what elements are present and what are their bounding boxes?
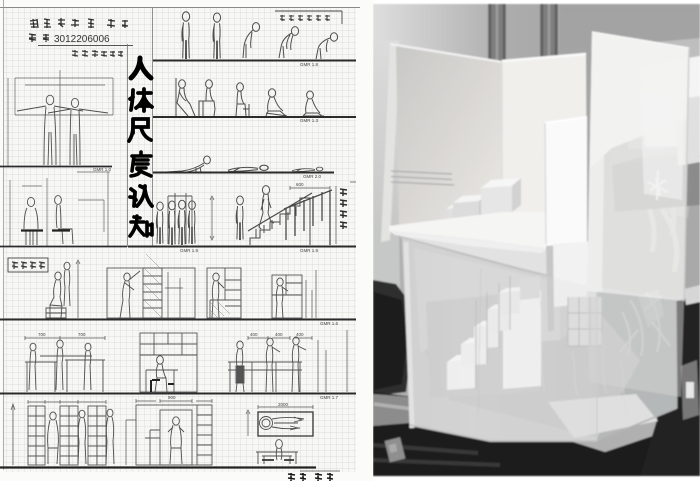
svg-text:400: 400 [296, 332, 304, 337]
svg-text:900: 900 [168, 395, 176, 400]
svg-text:600: 600 [296, 182, 304, 187]
svg-text:GMR 1.9: GMR 1.9 [180, 248, 199, 253]
svg-text:400: 400 [250, 332, 258, 337]
svg-text:GMR 2.0: GMR 2.0 [303, 174, 322, 179]
svg-text:GMR 1.7: GMR 1.7 [320, 395, 339, 400]
svg-text:400: 400 [275, 332, 283, 337]
svg-text:GMR 1.3: GMR 1.3 [300, 118, 319, 123]
svg-text:3012206006: 3012206006 [54, 34, 110, 45]
svg-text:700: 700 [78, 332, 86, 337]
svg-text:GMR 1.6: GMR 1.6 [320, 321, 339, 326]
svg-text:700: 700 [38, 332, 46, 337]
svg-text:GMR 1.0: GMR 1.0 [93, 167, 112, 172]
svg-text:2000: 2000 [278, 402, 289, 407]
svg-text:GMR 1.9: GMR 1.9 [300, 248, 319, 253]
svg-text:GMR 1.8: GMR 1.8 [300, 62, 319, 67]
